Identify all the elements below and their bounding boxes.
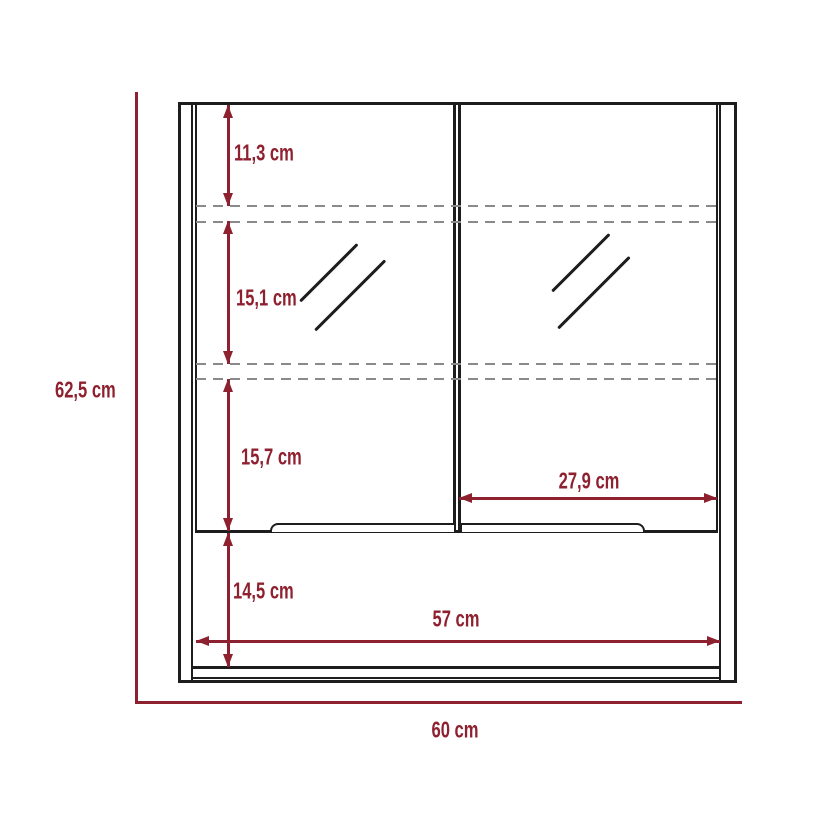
bottom-shelf-bottom-line — [193, 677, 720, 679]
right-door-handle — [460, 523, 645, 532]
dimension-arrow-top-section — [227, 105, 230, 206]
hidden-shelf-line-1-top — [196, 205, 717, 207]
right-side-panel-inner-line — [719, 104, 721, 681]
bottom-shelf-top-line — [193, 666, 720, 669]
dimension-arrow-lower-section — [227, 379, 230, 531]
dimension-label-middle-section: 15,1 cm — [236, 287, 297, 310]
dimension-label-door-width: 27,9 cm — [559, 470, 620, 493]
left-side-panel-inner-line — [191, 104, 193, 681]
dimension-label-lower-section: 15,7 cm — [241, 446, 302, 469]
dimension-label-open-compartment: 14,5 cm — [233, 580, 294, 603]
dimension-arrow-door-width — [459, 497, 717, 500]
left-door-edge-line — [195, 105, 197, 531]
dimension-label-top-section: 11,3 cm — [234, 142, 294, 165]
overall-width-extension-line — [135, 701, 742, 704]
dimension-arrow-open-compartment — [227, 533, 230, 667]
dimension-arrow-middle-section — [227, 221, 230, 364]
door-center-divider — [453, 105, 461, 531]
left-door-handle — [270, 523, 456, 532]
product-dimension-diagram: 62,5 cm 11,3 cm 15,1 cm 15,7 cm 14,5 cm … — [0, 0, 840, 840]
dimension-label-overall-height: 62,5 cm — [55, 379, 116, 402]
hidden-shelf-line-2-bottom — [196, 378, 717, 380]
hidden-shelf-line-1-bottom — [196, 221, 717, 223]
dimension-arrow-interior-width — [196, 640, 720, 643]
hidden-shelf-line-2-top — [196, 363, 717, 365]
right-door-edge-line — [716, 105, 718, 531]
overall-height-extension-line — [135, 92, 138, 704]
dimension-label-overall-width: 60 cm — [432, 719, 479, 742]
dimension-label-interior-width: 57 cm — [433, 608, 480, 631]
